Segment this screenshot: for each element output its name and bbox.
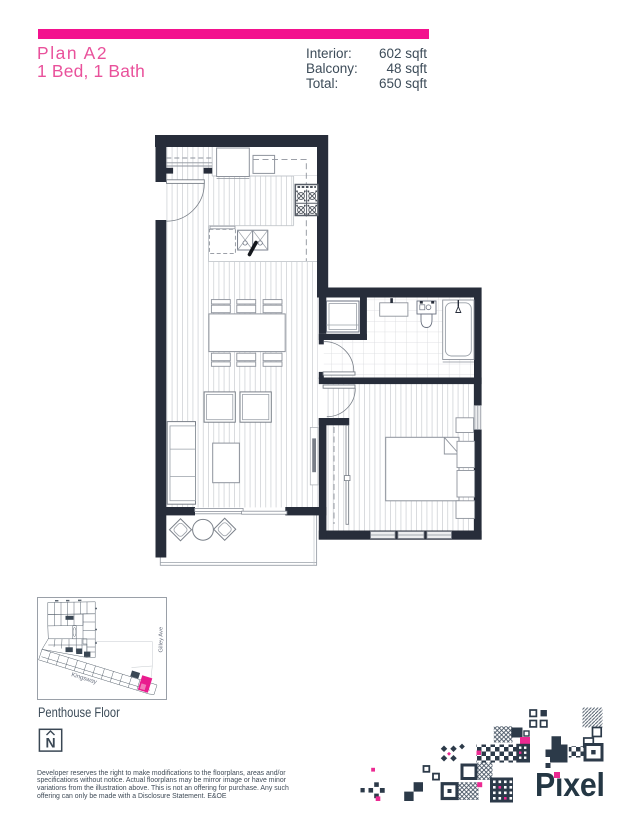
svg-text:Gilley Ave: Gilley Ave (159, 627, 165, 653)
svg-text:N: N (45, 735, 55, 751)
